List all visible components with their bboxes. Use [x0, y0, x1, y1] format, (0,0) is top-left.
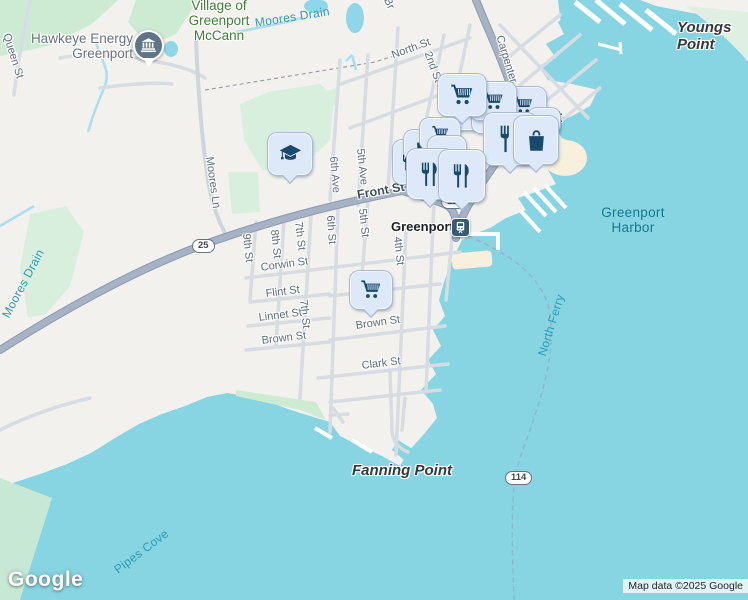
- label-flint-st: Flint St: [265, 284, 300, 300]
- school-icon: [277, 141, 304, 167]
- label-village-of-greenport-mccann: Village of Greenport McCann: [189, 0, 250, 43]
- label-greenport-harbor: Greenport Harbor: [601, 205, 664, 235]
- map-overlay: Hawkeye Energy GreenportVillage of Green…: [0, 0, 748, 600]
- label-5th-st: 5th St: [356, 208, 371, 238]
- marker-school[interactable]: [268, 133, 312, 175]
- bag-icon: [523, 125, 550, 154]
- label-moores-drain-top: Moores Drain: [254, 5, 331, 30]
- label-8th-st: 8th St: [268, 229, 283, 259]
- label-moores-drain-left: Moores Drain: [0, 247, 47, 320]
- label-brown-st-east: Brown St: [355, 314, 401, 332]
- label-queen-st: Queen St: [0, 32, 25, 80]
- train-icon: [453, 220, 468, 235]
- cart-icon: [358, 278, 384, 301]
- google-logo[interactable]: Google: [8, 568, 83, 592]
- label-br-fragment: Br: [381, 0, 397, 11]
- marker-restaurant-pair-2[interactable]: [439, 150, 485, 202]
- marker-train-station[interactable]: [451, 218, 470, 237]
- map-canvas[interactable]: Hawkeye Energy GreenportVillage of Green…: [0, 0, 748, 600]
- label-north-ferry: North Ferry: [536, 293, 568, 358]
- label-carpenter: Carpenter: [493, 34, 519, 84]
- label-corwin-st: Corwin St: [260, 255, 309, 274]
- label-moores-ln: Moores Ln: [203, 156, 222, 209]
- label-brown-st-west: Brown St: [261, 330, 307, 348]
- route-shield-114-ferry: 114: [505, 471, 532, 485]
- label-6th-ave: 6th Ave: [327, 156, 342, 193]
- map-attribution: Map data ©2025 Google: [623, 579, 748, 593]
- label-linnet-st: Linnet St: [258, 307, 303, 325]
- label-5th-ave: 5th Ave: [354, 148, 370, 186]
- label-7th-st-lower: 7th St: [297, 299, 312, 329]
- route-shield-25: 25: [192, 239, 215, 253]
- label-clark-st: Clark St: [361, 355, 401, 372]
- label-7th-st-upper: 7th St: [292, 221, 308, 251]
- restaurant-icon: [448, 160, 476, 192]
- cart-icon: [447, 82, 476, 108]
- label-fanning-point: Fanning Point: [352, 463, 452, 480]
- label-youngs-point: Youngs Point: [677, 20, 748, 54]
- label-greenport-station: Greenport: [391, 220, 454, 235]
- museum-icon: [139, 36, 158, 55]
- marker-bag-big[interactable]: [514, 116, 558, 164]
- label-north-st: North St: [390, 36, 432, 61]
- label-9th-st: 9th St: [240, 233, 255, 263]
- label-hawkeye-energy: Hawkeye Energy Greenport: [31, 31, 133, 61]
- marker-cart-1[interactable]: [438, 74, 486, 116]
- label-4th-st: 4th St: [391, 236, 406, 266]
- label-pipes-cove: Pipes Cove: [112, 527, 171, 576]
- label-6th-st: 6th St: [324, 215, 338, 245]
- marker-grocery-brown-st[interactable]: [350, 271, 392, 309]
- marker-hawkeye-plant[interactable]: [133, 30, 164, 61]
